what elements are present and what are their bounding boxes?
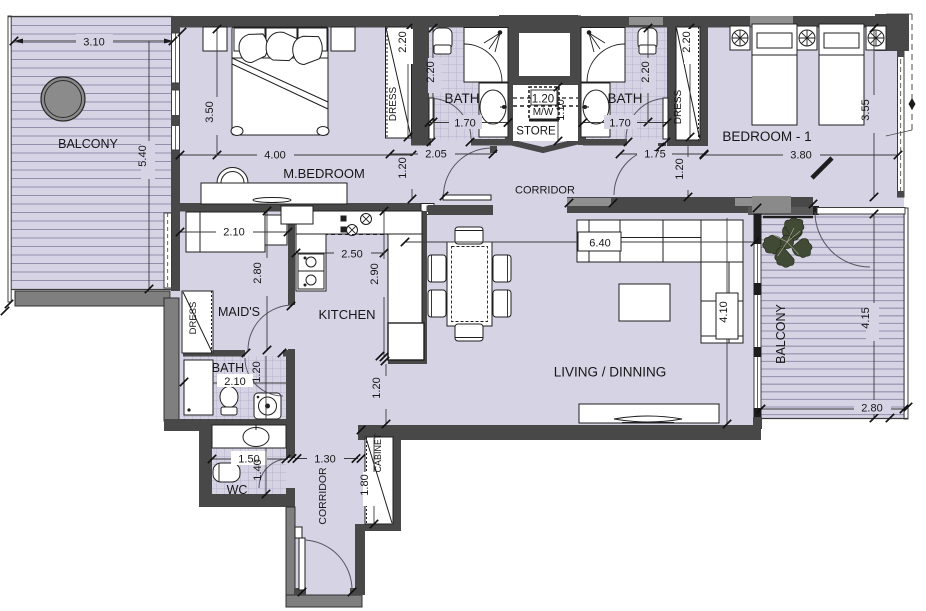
svg-text:STORE: STORE bbox=[516, 126, 556, 138]
svg-text:6.40: 6.40 bbox=[589, 238, 610, 250]
svg-text:CORRIDOR: CORRIDOR bbox=[317, 467, 329, 525]
svg-text:M.BEDROOM: M.BEDROOM bbox=[283, 166, 365, 181]
svg-text:DRESS: DRESS bbox=[673, 89, 684, 124]
svg-text:BEDROOM - 1: BEDROOM - 1 bbox=[722, 129, 811, 144]
svg-text:2.20: 2.20 bbox=[425, 61, 437, 82]
svg-text:BALCONY: BALCONY bbox=[774, 303, 788, 363]
svg-text:LIVING / DINNING: LIVING / DINNING bbox=[554, 365, 667, 380]
svg-text:1.40: 1.40 bbox=[252, 459, 264, 480]
svg-text:2.05: 2.05 bbox=[425, 149, 446, 161]
svg-text:KITCHEN: KITCHEN bbox=[318, 307, 375, 322]
svg-text:1.75: 1.75 bbox=[644, 149, 665, 161]
svg-text:BATH: BATH bbox=[212, 361, 244, 375]
svg-text:3.10: 3.10 bbox=[83, 37, 104, 49]
svg-text:1.10: 1.10 bbox=[555, 99, 567, 120]
svg-text:3.55: 3.55 bbox=[860, 99, 872, 120]
svg-text:1.70: 1.70 bbox=[454, 118, 475, 130]
svg-text:WC: WC bbox=[227, 483, 248, 497]
svg-text:CABINET: CABINET bbox=[373, 433, 383, 473]
svg-text:1.20: 1.20 bbox=[674, 158, 686, 179]
svg-text:2.80: 2.80 bbox=[861, 403, 882, 415]
svg-text:2.80: 2.80 bbox=[252, 262, 264, 283]
svg-text:M/W: M/W bbox=[533, 107, 554, 118]
svg-text:4.15: 4.15 bbox=[860, 307, 872, 328]
svg-text:2.10: 2.10 bbox=[223, 227, 244, 239]
svg-text:MAID'S: MAID'S bbox=[218, 305, 260, 319]
svg-text:1.20: 1.20 bbox=[371, 377, 383, 398]
svg-text:1.80: 1.80 bbox=[359, 474, 371, 495]
svg-text:2.20: 2.20 bbox=[681, 31, 693, 52]
svg-text:2.50: 2.50 bbox=[341, 249, 362, 261]
svg-text:BALCONY: BALCONY bbox=[58, 137, 118, 151]
svg-text:1.20: 1.20 bbox=[397, 157, 409, 178]
svg-text:3.80: 3.80 bbox=[790, 150, 811, 162]
svg-text:BATH: BATH bbox=[607, 91, 642, 106]
svg-text:1.30: 1.30 bbox=[314, 454, 335, 466]
svg-text:1.70: 1.70 bbox=[609, 118, 630, 130]
svg-text:2.20: 2.20 bbox=[640, 61, 652, 82]
svg-text:4.10: 4.10 bbox=[718, 301, 730, 322]
svg-text:5.40: 5.40 bbox=[137, 145, 149, 166]
svg-text:DRESS: DRESS bbox=[388, 86, 399, 121]
svg-text:DRESS: DRESS bbox=[188, 302, 199, 335]
svg-text:1.20: 1.20 bbox=[251, 361, 263, 382]
svg-text:BATH: BATH bbox=[444, 91, 479, 106]
svg-text:2.90: 2.90 bbox=[369, 263, 381, 284]
svg-text:4.00: 4.00 bbox=[264, 150, 285, 162]
svg-text:2.10: 2.10 bbox=[224, 376, 245, 388]
svg-text:2.20: 2.20 bbox=[397, 31, 409, 52]
svg-text:1.20: 1.20 bbox=[532, 94, 554, 106]
svg-text:3.50: 3.50 bbox=[204, 101, 216, 122]
svg-text:CORRIDOR: CORRIDOR bbox=[515, 185, 575, 197]
